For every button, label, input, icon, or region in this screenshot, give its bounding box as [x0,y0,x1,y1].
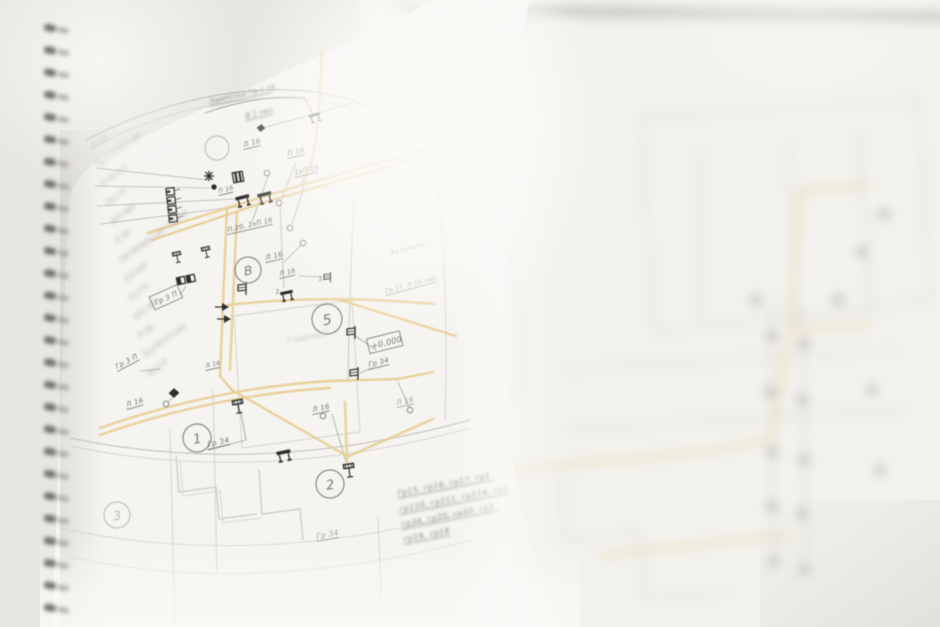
blurred-symbol-dot [801,341,808,347]
blurred-symbol-dot [801,457,808,463]
photo-frame: В5123 Л 16П 162хП 16П 16П.20, 2хП 16Л 16… [0,0,940,627]
blurred-symbol-dot [799,397,806,403]
blurred-symbol-dot [877,467,884,473]
blurred-symbol-dot [769,449,776,455]
junction-node [407,407,413,413]
corner-vignette [760,500,940,627]
blurred-symbol-dot [835,297,842,303]
top-left-glare [0,0,240,190]
junction-node [163,401,169,407]
blurred-symbol-dot [859,249,866,255]
top-right-glare [620,0,940,140]
page-fold-highlight [448,0,568,627]
blurred-symbol-dot [767,389,774,395]
blurred-symbol-dot [869,387,876,393]
blueprint-photo: В5123 Л 16П 162хП 16П 16П.20, 2хП 16Л 16… [0,0,940,627]
blurred-symbol-dot [881,211,888,217]
junction-node [320,413,326,419]
blurred-symbol-dot [769,333,776,339]
blurred-symbol-dot [753,297,760,303]
